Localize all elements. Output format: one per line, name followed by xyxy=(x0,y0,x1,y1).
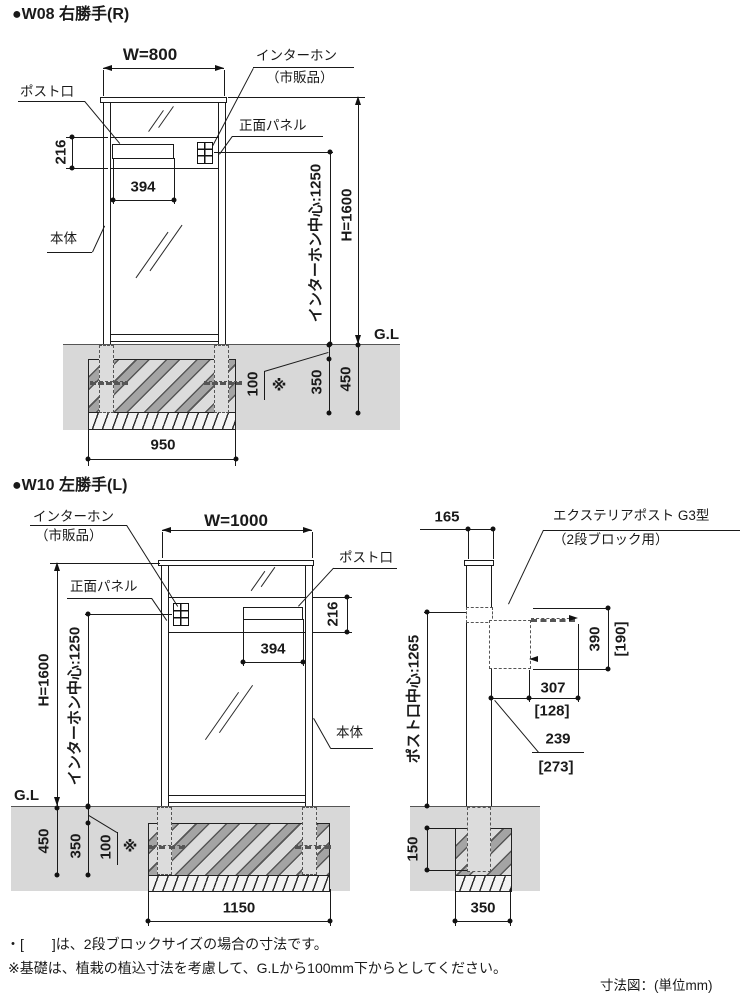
w10-panel-band-top xyxy=(168,597,305,598)
mail-out-arrow-icon xyxy=(529,656,538,662)
w08-post-left-inner xyxy=(110,103,111,344)
label-underline xyxy=(67,598,152,599)
label-underline xyxy=(543,530,740,531)
extension-line xyxy=(468,531,469,559)
w08-gravel-base xyxy=(88,412,236,430)
leader-shelf xyxy=(264,371,265,400)
dimension-drawing-page: ●W08 右勝手(R) W=800 ポスト口 インターホン （市販品） 正面パネ… xyxy=(0,0,740,1005)
w10-glass-mark xyxy=(261,567,276,587)
w08-top-cap xyxy=(100,97,227,103)
w10-interphone-unit xyxy=(173,603,189,626)
dim-line xyxy=(420,529,494,530)
w10-post-embed-left xyxy=(157,807,172,875)
leader-line xyxy=(151,598,167,621)
w10-anchor-mark-left xyxy=(149,845,185,849)
w08-post-right-outer xyxy=(225,103,226,344)
dim-line xyxy=(57,808,58,875)
dim-line xyxy=(329,345,330,413)
side-box-height-alt-dim: [190] xyxy=(612,621,629,656)
w10-post-right-inner xyxy=(305,566,306,806)
w08-footing-height-dim: 350 xyxy=(308,369,325,394)
dim-line xyxy=(113,200,174,201)
dim-line xyxy=(57,565,58,806)
side-product-label: エクステリアポスト G3型 xyxy=(553,508,709,524)
w08-slot-band-dim: 216 xyxy=(52,139,69,164)
w08-glass-mark xyxy=(136,232,169,278)
mail-in-arrow-icon xyxy=(569,615,578,621)
extension-line xyxy=(429,870,467,871)
w10-body-label: 本体 xyxy=(336,725,363,741)
leader-line xyxy=(313,718,331,749)
w08-anchor-mark-right xyxy=(204,381,242,385)
w08-body-label: 本体 xyxy=(50,231,77,247)
w08-embed-note: ※ xyxy=(272,377,287,394)
extension-line xyxy=(312,532,313,558)
w10-post-left-outer xyxy=(161,566,162,806)
dim-line xyxy=(148,921,330,922)
extension-line xyxy=(214,152,333,153)
w10-post-slot xyxy=(243,607,303,620)
leader-line xyxy=(494,700,539,753)
dim-line xyxy=(455,921,512,922)
w10-bottom-rail-top xyxy=(168,795,305,796)
drawing-caption: 寸法図：(単位mm) xyxy=(600,978,712,994)
w08-panel-band-bottom xyxy=(110,168,218,169)
side-product-label2: （2段ブロック用） xyxy=(553,532,669,548)
w08-anchor-mark-left xyxy=(90,381,128,385)
side-post-embed-dim: 150 xyxy=(404,836,421,861)
w10-gl-label: G.L xyxy=(14,787,39,804)
w10-glass-mark xyxy=(205,692,239,740)
w10-anchor-mark-right xyxy=(295,845,331,849)
side-box-front-offset-dim: 239 xyxy=(545,730,570,747)
w10-gravel-base xyxy=(148,875,330,892)
dim-line xyxy=(608,608,609,669)
leader-shelf xyxy=(532,752,584,753)
extension-line xyxy=(228,97,365,98)
side-box-top-depth-dim: 307 xyxy=(540,679,565,696)
dim-line xyxy=(347,597,348,632)
dim-line xyxy=(358,345,359,413)
side-mailbox-body xyxy=(489,620,531,669)
arrow-up-icon xyxy=(355,96,361,105)
extension-line xyxy=(578,624,579,702)
dim-line xyxy=(427,612,428,806)
extension-line xyxy=(424,612,466,613)
dim-line xyxy=(103,68,224,69)
arrow-right-icon xyxy=(303,527,312,533)
w08-gl-label: G.L xyxy=(374,326,399,343)
w08-front-panel-label: 正面パネル xyxy=(239,118,307,134)
w08-footing-width-dim: 950 xyxy=(150,436,175,453)
w08-interphone-center-dim: インターホン中心:1250 xyxy=(307,164,324,322)
label-underline xyxy=(30,525,127,526)
w10-slot-width-dim: 394 xyxy=(260,640,285,657)
extension-line xyxy=(533,608,609,609)
w10-interphone-note: （市販品） xyxy=(35,528,103,544)
w08-post-right-inner xyxy=(218,103,219,344)
w08-glass-mark xyxy=(158,106,174,128)
side-post-front-line xyxy=(466,566,467,806)
w08-post-left-outer xyxy=(103,103,104,344)
w10-interphone-label: インターホン xyxy=(33,509,114,525)
arrow-left-icon xyxy=(103,65,112,71)
w10-front-panel-label: 正面パネル xyxy=(70,579,138,595)
extension-line xyxy=(533,669,609,670)
side-box-front-offset-alt-dim: [273] xyxy=(538,758,573,775)
dim-line xyxy=(162,530,312,531)
w10-glass-mark xyxy=(219,685,253,733)
w08-interphone-unit xyxy=(197,142,213,164)
dim-line xyxy=(330,152,331,344)
w10-embed-note: ※ xyxy=(123,838,138,855)
w08-interphone-label: インターホン xyxy=(256,48,337,64)
w10-post-left-inner xyxy=(168,566,169,806)
extension-line xyxy=(103,70,104,96)
extension-line xyxy=(50,563,160,564)
w10-title: ●W10 左勝手(L) xyxy=(12,477,127,495)
arrow-up-icon xyxy=(54,562,60,571)
dim-line xyxy=(491,698,578,699)
side-post-back-line xyxy=(491,566,492,806)
extension-line xyxy=(85,614,172,615)
side-box-height-dim: 390 xyxy=(586,626,603,651)
w08-bottom-rail-top xyxy=(110,334,218,335)
extension-line xyxy=(162,532,163,558)
w10-post-embed-right xyxy=(302,807,317,875)
arrow-right-icon xyxy=(215,65,224,71)
w08-footing-total-dim: 450 xyxy=(337,366,354,391)
w08-slot-width-dim: 394 xyxy=(130,178,155,195)
w10-footing-width-dim: 1150 xyxy=(223,899,256,916)
side-box-top-depth-alt-dim: [128] xyxy=(534,702,569,719)
extension-line xyxy=(429,828,457,829)
w08-interphone-note: （市販品） xyxy=(266,70,334,86)
w10-footing-total-dim: 450 xyxy=(35,828,52,853)
arrow-left-icon xyxy=(162,527,171,533)
w10-post-slot-label: ポスト口 xyxy=(339,550,393,566)
dim-line xyxy=(88,614,89,806)
w10-panel-band-bottom xyxy=(168,632,305,633)
foundation-note: ※基礎は、植栽の植込寸法を考慮して、G.Lから100mm下からとしてください。 xyxy=(8,960,507,976)
side-slot-center-dim: ポスト口中心:1265 xyxy=(405,635,422,763)
dim-line xyxy=(427,828,428,870)
side-post-depth-dim: 165 xyxy=(434,508,459,525)
w10-bottom-rail-bottom xyxy=(168,802,305,803)
w08-post-embed-right xyxy=(214,345,229,413)
dim-line xyxy=(243,662,303,663)
label-underline xyxy=(253,67,354,68)
w10-interphone-center-dim: インターホン中心:1250 xyxy=(66,627,83,785)
w10-slot-band-dim: 216 xyxy=(324,601,341,626)
w08-bottom-rail-bottom xyxy=(110,341,218,342)
bracket-note: ・[ ]は、2段ブロックサイズの場合の寸法です。 xyxy=(6,936,328,952)
w08-title: ●W08 右勝手(R) xyxy=(12,6,129,24)
leader-line xyxy=(508,530,544,605)
label-underline xyxy=(18,101,85,102)
extension-line xyxy=(493,531,494,559)
dim-line xyxy=(88,459,236,460)
label-underline xyxy=(232,136,323,137)
w10-height-dim: H=1600 xyxy=(35,654,52,707)
w08-post-slot xyxy=(112,144,174,159)
w10-top-cap xyxy=(158,560,314,566)
w08-width-dim: W=800 xyxy=(123,45,177,65)
side-post-cap xyxy=(464,560,494,566)
side-footing-width-dim: 350 xyxy=(470,899,495,916)
w08-height-dim: H=1600 xyxy=(338,189,355,242)
extension-line xyxy=(224,70,225,96)
w10-footing-height-dim: 350 xyxy=(67,833,84,858)
dim-line xyxy=(72,137,73,168)
label-underline xyxy=(333,568,397,569)
dim-line xyxy=(88,807,89,875)
side-gravel-base xyxy=(455,875,512,892)
w08-embed-top-dim: 100 xyxy=(244,371,261,396)
w10-width-dim: W=1000 xyxy=(204,511,268,531)
w10-post-right-outer xyxy=(312,566,313,806)
w10-embed-top-dim: 100 xyxy=(97,834,114,859)
w08-post-embed-left xyxy=(99,345,114,413)
w08-panel-band-top xyxy=(110,137,218,138)
label-underline xyxy=(331,748,373,749)
dim-line xyxy=(358,99,359,343)
label-underline xyxy=(47,252,92,253)
side-post-embed xyxy=(467,807,491,872)
leader-shelf xyxy=(117,832,118,865)
w08-post-slot-label: ポスト口 xyxy=(20,84,74,100)
